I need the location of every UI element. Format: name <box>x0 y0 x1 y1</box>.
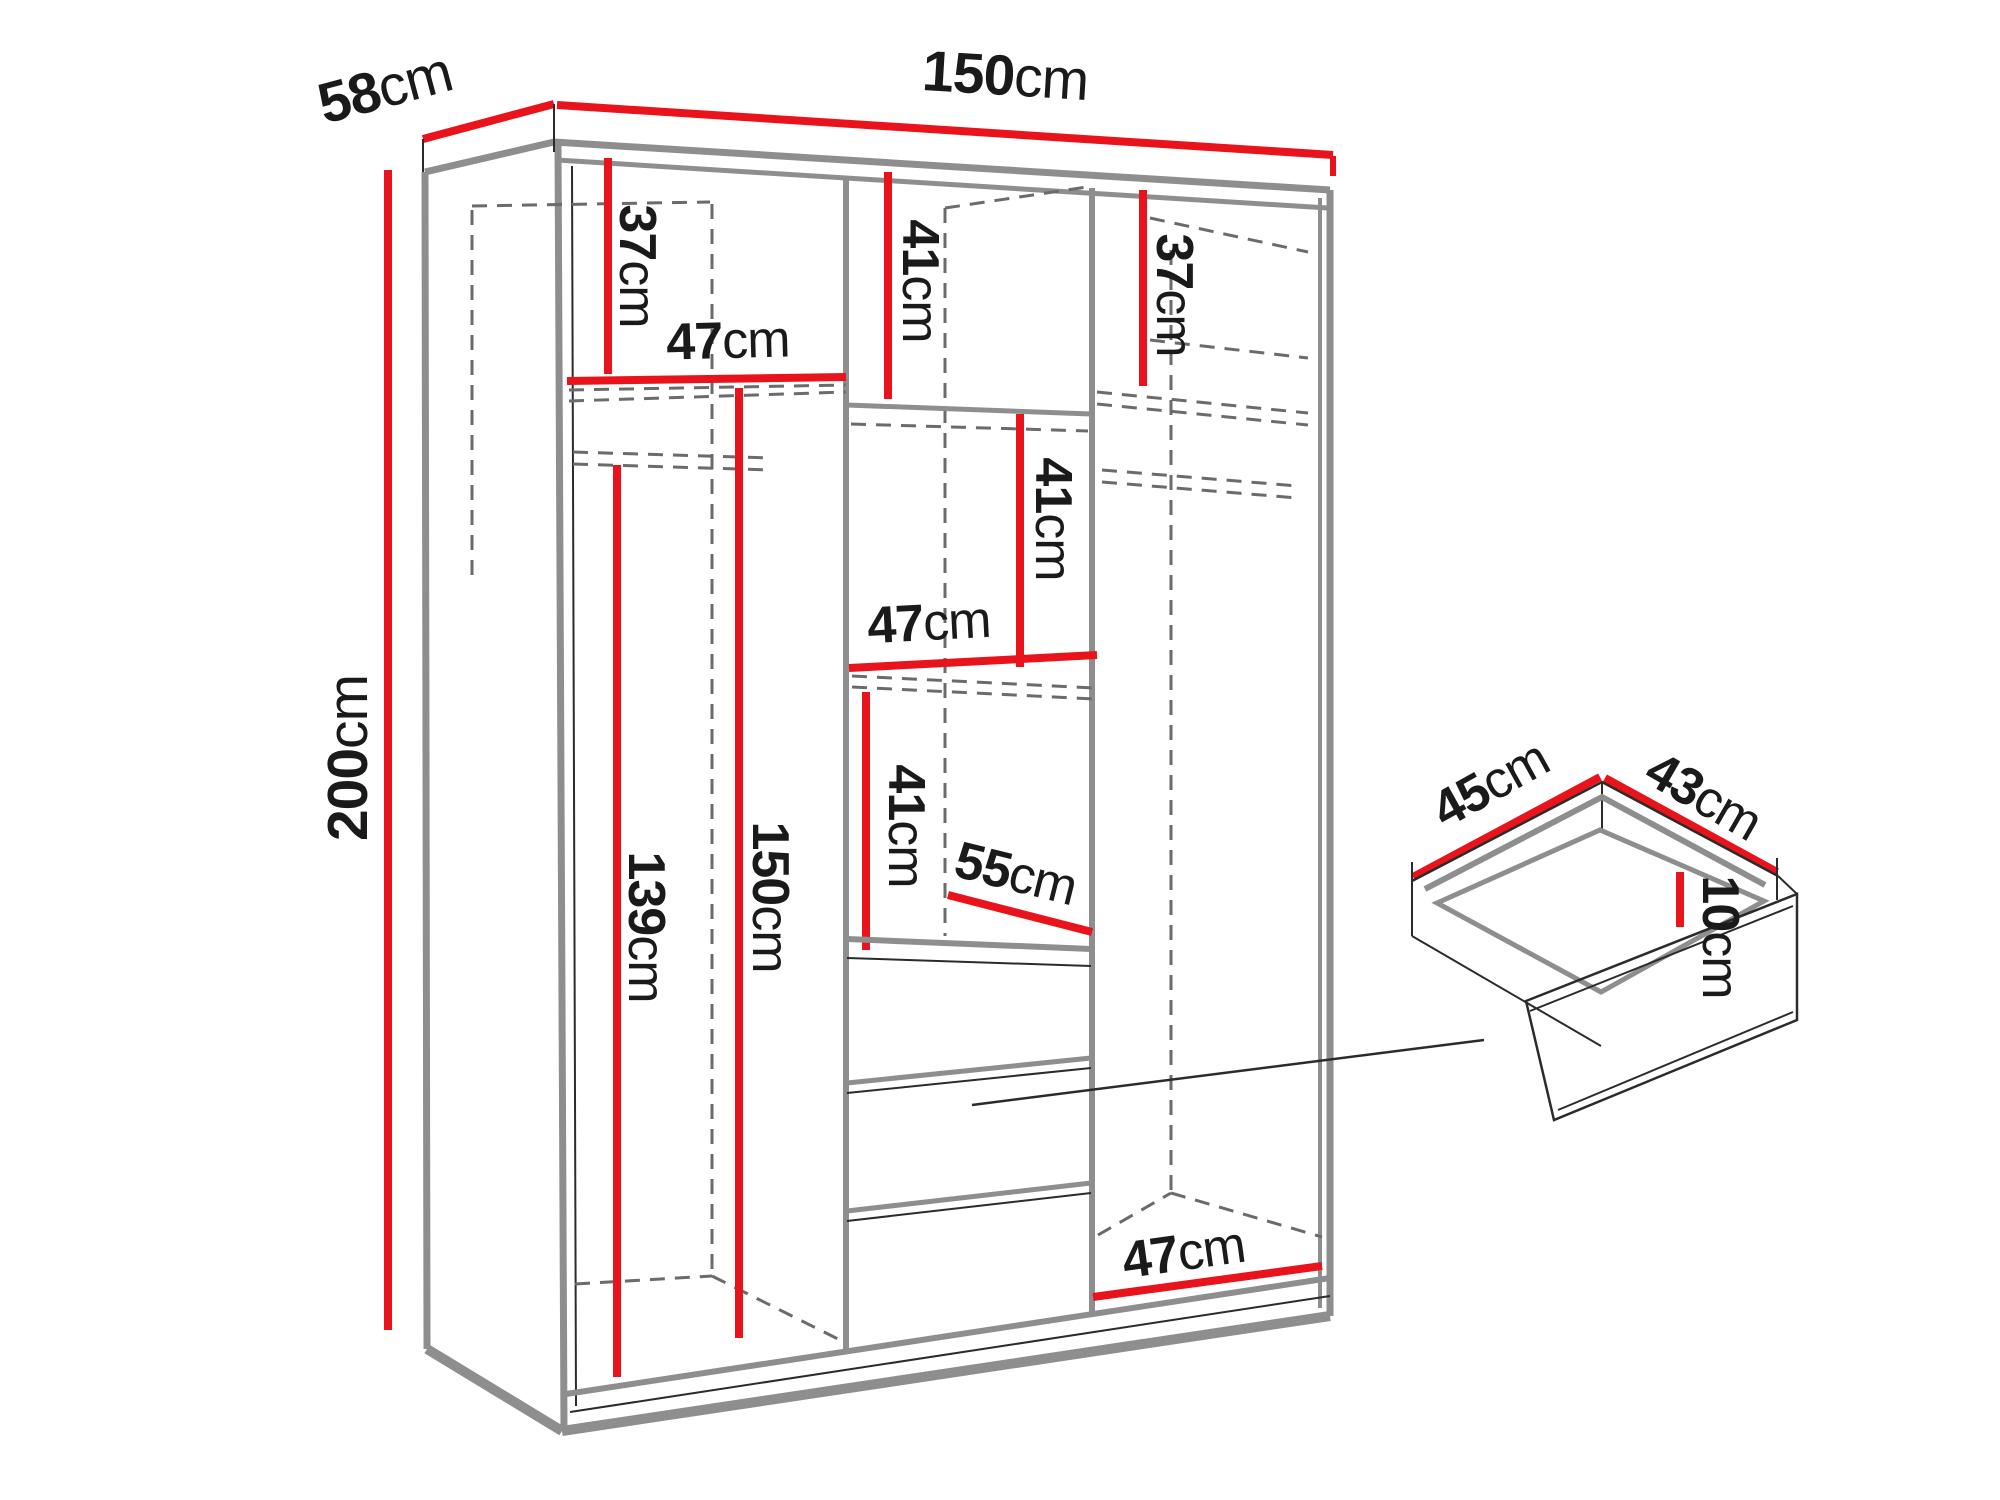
label-10-drawer: 10cm <box>1691 875 1749 998</box>
dim-line-47-mid-shelf <box>849 655 1097 668</box>
side-bottom-edge <box>427 1349 562 1431</box>
back-left-edge <box>425 172 427 1349</box>
left-bottom-back-dash <box>575 1276 712 1284</box>
back-top-dash-left <box>472 202 710 206</box>
side-top-edge <box>425 142 554 172</box>
mid-shelf-1-back-dash <box>851 424 1088 431</box>
label-47-mid-shelf: 47cm <box>866 591 992 655</box>
drawer-unit-top <box>847 939 1091 949</box>
drawer-front-panel-edge <box>1558 1012 1793 1110</box>
label-height-200: 200cm <box>316 675 380 841</box>
dim-line-58-depth <box>423 104 554 139</box>
dimension-labels: 58cm 150cm 200cm 37cm 47cm 41cm 37cm 41c… <box>311 39 1771 1290</box>
right-shelf-dash <box>1097 392 1308 413</box>
label-37-left: 37cm <box>608 204 666 327</box>
diagram-canvas: 58cm 150cm 200cm 37cm 47cm 41cm 37cm 41c… <box>0 0 2000 1500</box>
label-41-mid-top: 41cm <box>891 219 949 342</box>
front-bottom-edge <box>562 1316 1330 1431</box>
label-139-hanging: 139cm <box>617 851 675 1002</box>
label-37-right: 37cm <box>1145 233 1203 356</box>
shelf-back-dash <box>569 385 846 390</box>
right-shelf-dash <box>1097 404 1308 425</box>
mid-shelf-2-back-dash <box>852 687 1095 699</box>
shelf-back-dash <box>569 392 846 401</box>
label-150-interior: 150cm <box>741 821 799 972</box>
left-bottom-front-dash <box>712 1276 846 1343</box>
mid-shelf-1 <box>847 405 1091 414</box>
label-41-mid-third: 41cm <box>877 764 935 887</box>
label-47-left-shelf: 47cm <box>666 310 791 371</box>
front-left-edge <box>558 142 564 1431</box>
drawer-front-panel-edge <box>1530 906 1793 1011</box>
drawer-left-wall-bottom <box>1412 936 1601 1046</box>
label-depth-58: 58cm <box>311 40 458 137</box>
drawer-divider-1 <box>847 1058 1091 1083</box>
drawer-right-wall-edge <box>1778 876 1797 894</box>
drawer-1-top-edge <box>847 958 1091 966</box>
label-45-drawer: 45cm <box>1422 729 1558 839</box>
drawer-front-panel <box>1526 894 1797 1120</box>
dimension-diagram: 58cm 150cm 200cm 37cm 47cm 41cm 37cm 41c… <box>0 0 2000 1500</box>
plinth-edge <box>570 1296 1330 1412</box>
inner-left-edge <box>572 166 576 1406</box>
label-41-mid-second: 41cm <box>1024 457 1082 580</box>
hanging-rail-dash <box>1102 482 1298 498</box>
label-width-150: 150cm <box>920 39 1090 113</box>
right-column <box>1093 190 1322 1297</box>
dim-line-47-left-shelf <box>567 377 846 381</box>
middle-column <box>847 172 1097 1221</box>
mid-shelf-2-back-dash <box>852 676 1095 688</box>
